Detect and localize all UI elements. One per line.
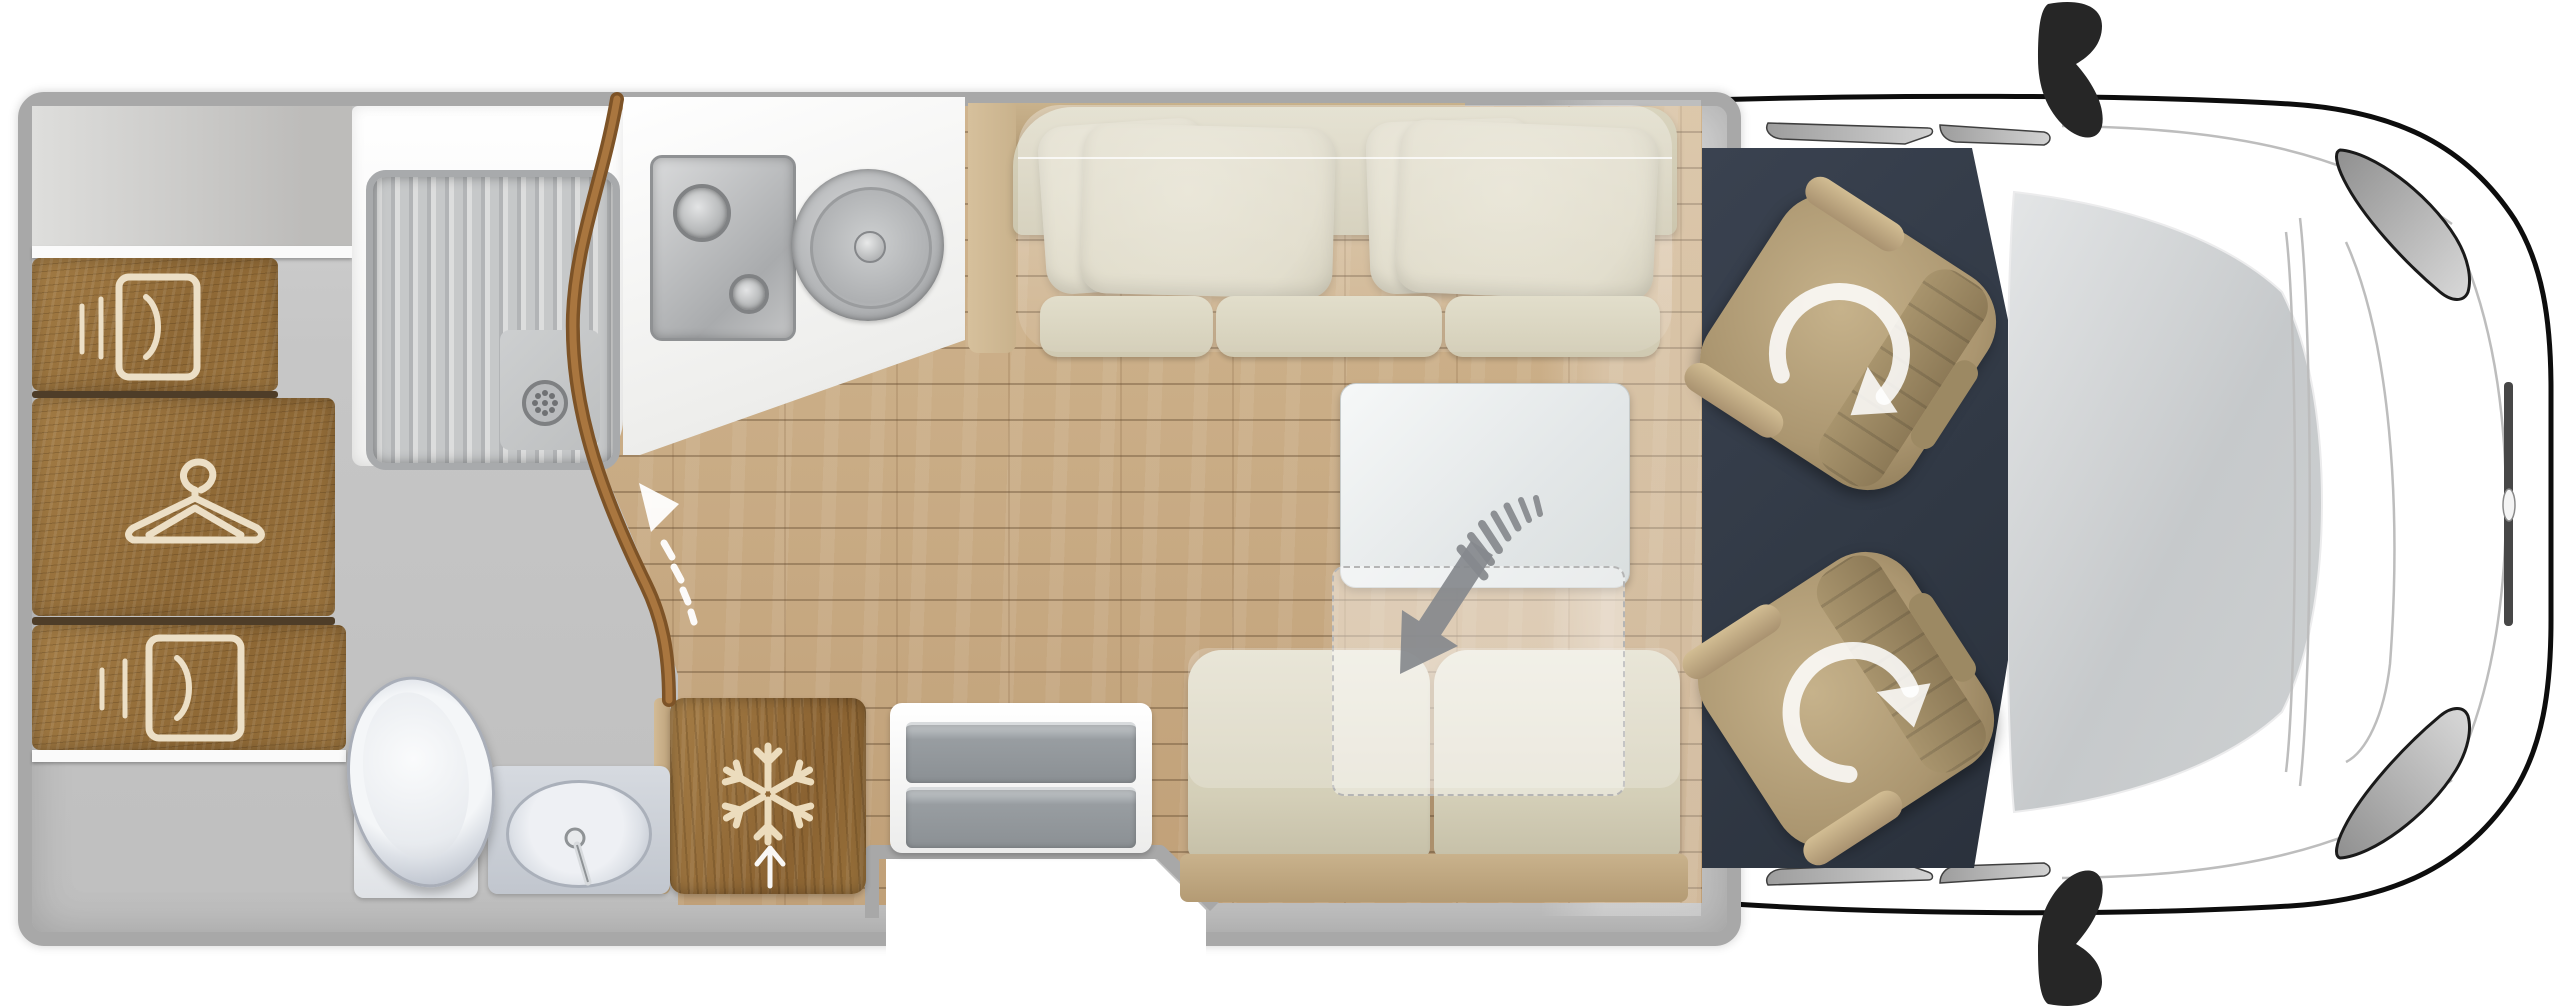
panel-seam (32, 617, 335, 625)
panel-seam (32, 391, 278, 398)
toilet-lid (351, 685, 480, 867)
drawer-unit (890, 703, 1152, 853)
drawer (906, 722, 1136, 783)
kitchen-sink (792, 169, 944, 321)
sofa-pillow (1080, 123, 1336, 300)
bench-base (1180, 854, 1688, 902)
sofa-seat-cushion (1445, 296, 1660, 357)
burner-large-icon (673, 184, 731, 242)
sofa-pillow (1394, 118, 1659, 302)
washbasin-counter (488, 766, 670, 894)
sink-drain-icon (854, 231, 886, 263)
dining-table (1340, 383, 1630, 588)
bed-area-overlay (1188, 648, 1680, 788)
washbasin (506, 780, 652, 888)
overhead-locker-bottom (32, 625, 346, 750)
sofa-seat-cushion (1216, 296, 1442, 357)
sofa-seat-cushion (1040, 296, 1213, 357)
motorhome-floorplan (0, 0, 2554, 1008)
rear-worktop (32, 106, 352, 246)
shower-tray-corner (500, 330, 600, 450)
cabinet-sill (32, 246, 352, 258)
cabinet-sill (32, 750, 346, 762)
overhead-locker-top (32, 258, 278, 391)
burner-small-icon (729, 274, 769, 314)
hob (650, 155, 796, 341)
refrigerator (670, 698, 866, 894)
sofa-armrest (968, 103, 1016, 353)
wardrobe (32, 398, 335, 616)
drawer (906, 787, 1136, 848)
